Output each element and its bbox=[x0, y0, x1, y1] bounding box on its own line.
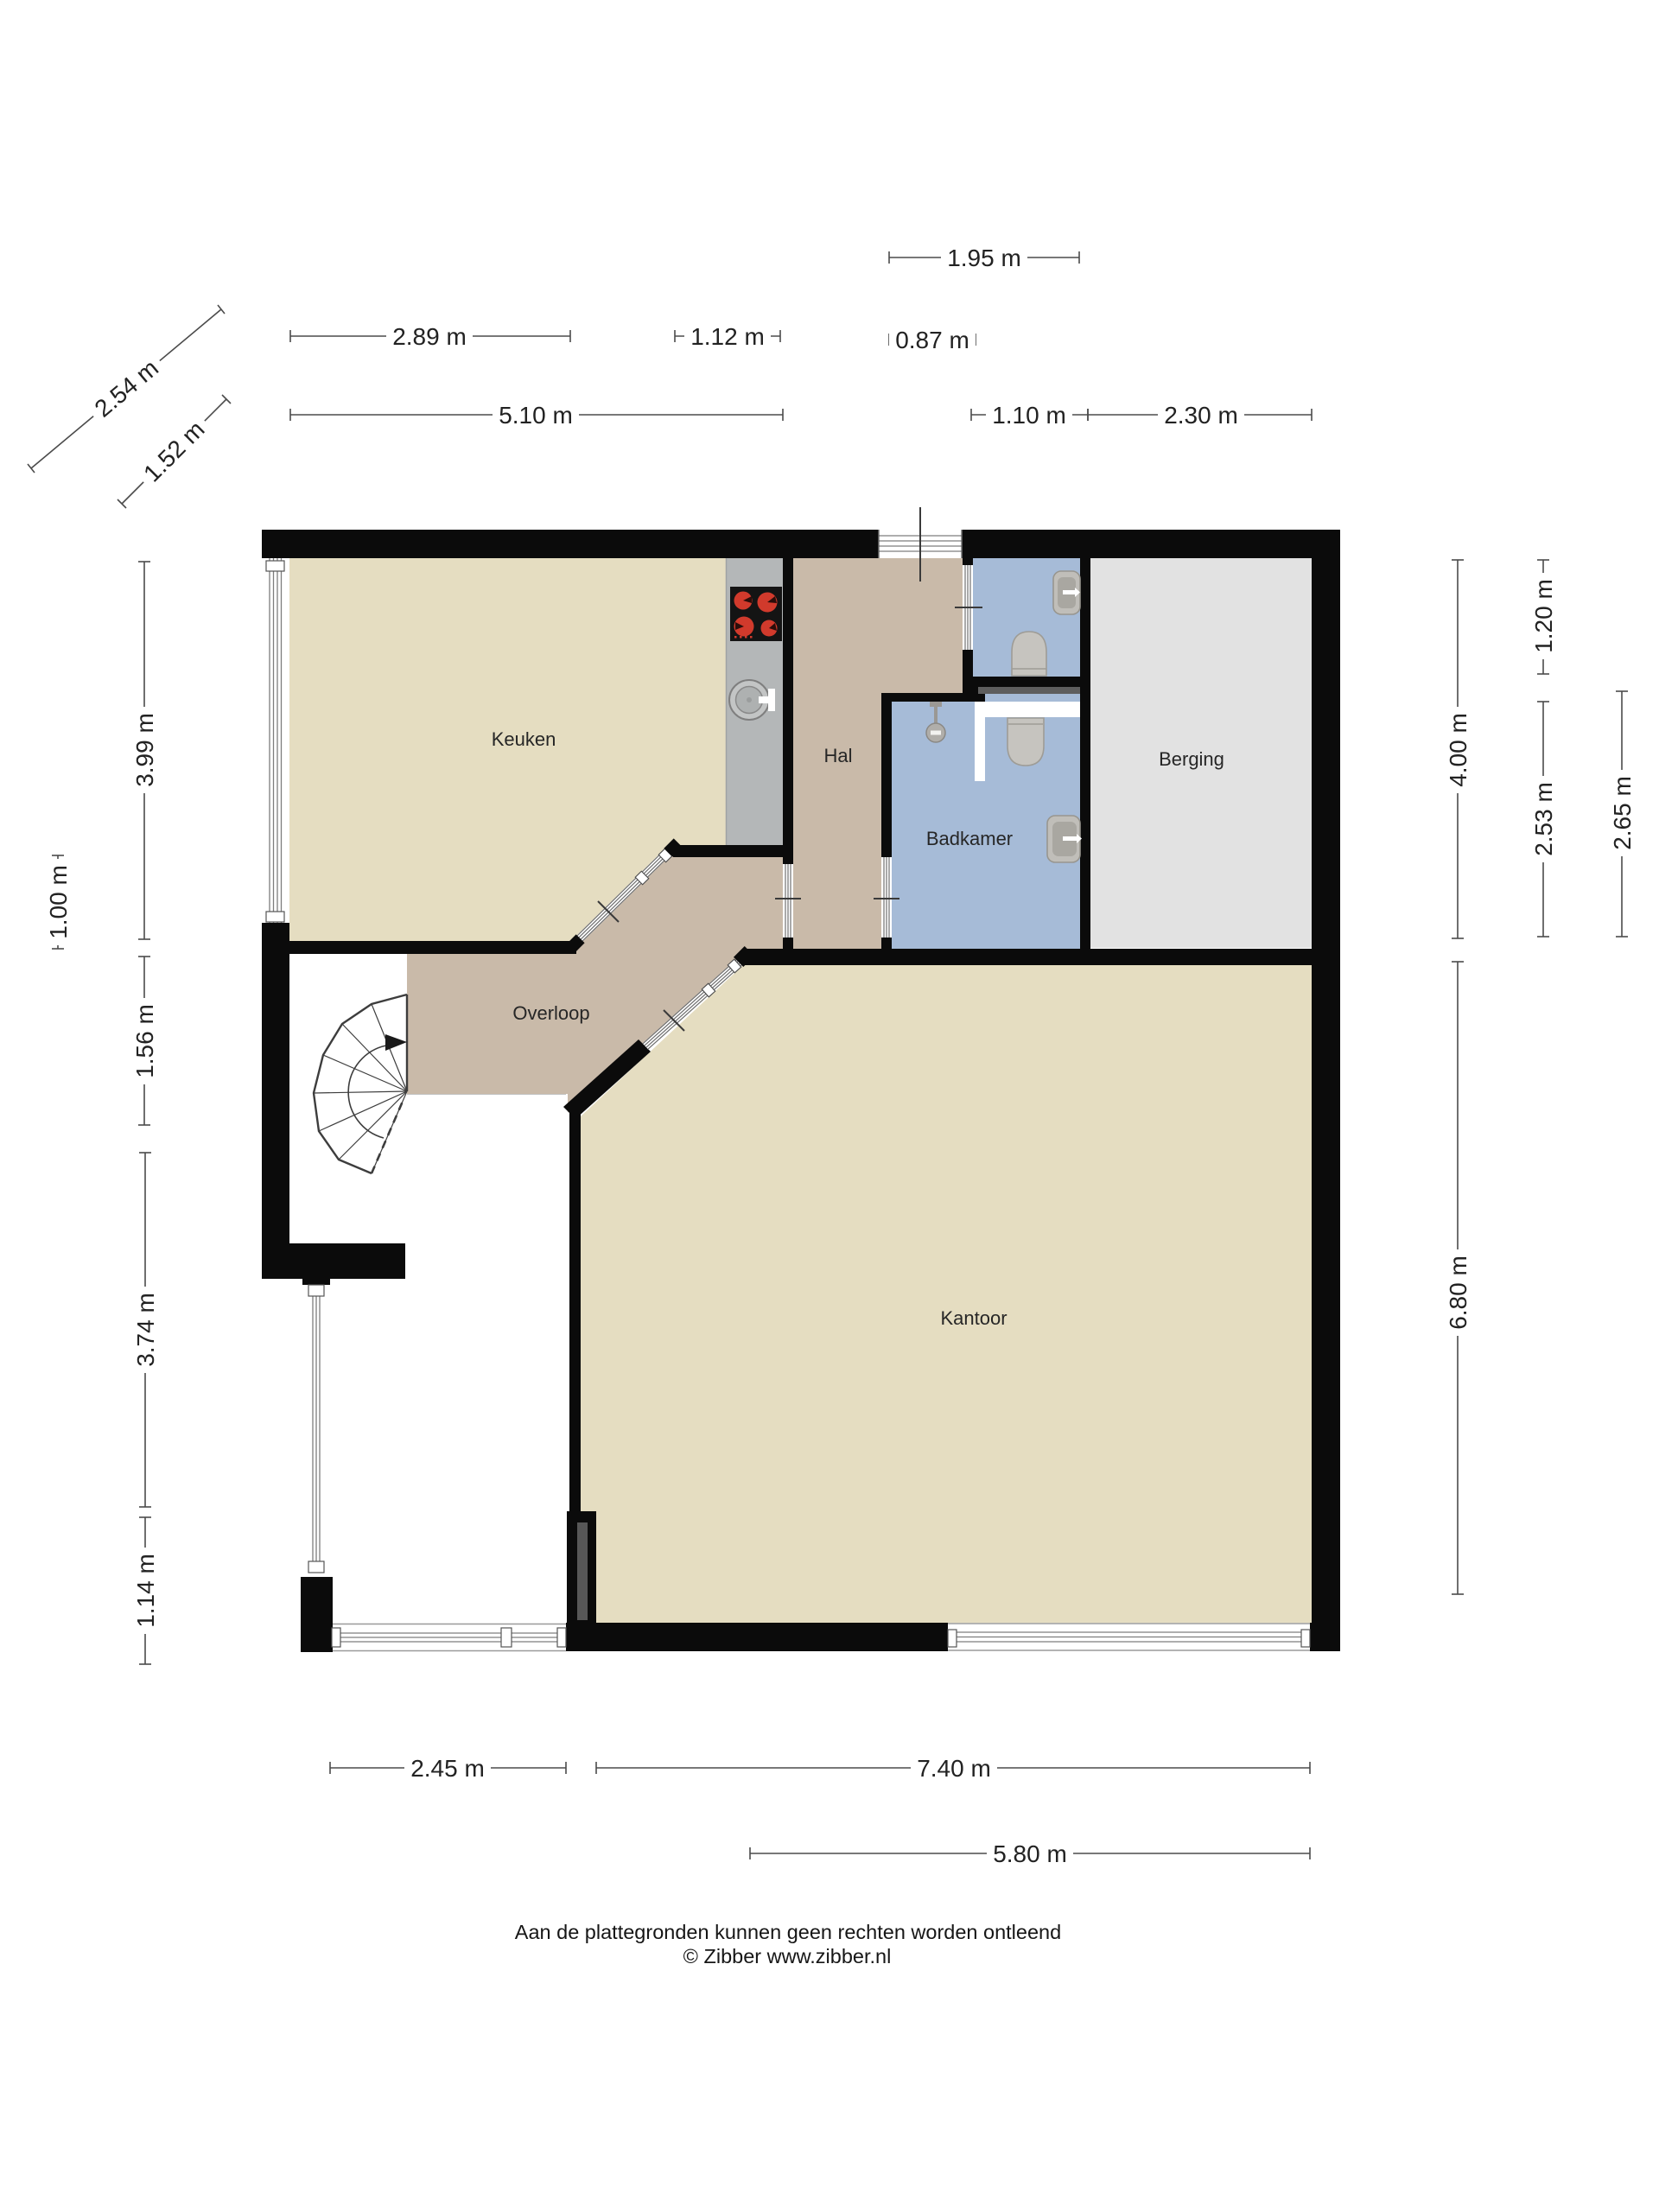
svg-text:1.95 m: 1.95 m bbox=[947, 245, 1021, 271]
svg-text:2.89 m: 2.89 m bbox=[392, 323, 467, 350]
svg-text:3.99 m: 3.99 m bbox=[131, 713, 158, 787]
svg-text:3.74 m: 3.74 m bbox=[132, 1293, 159, 1367]
svg-text:5.10 m: 5.10 m bbox=[499, 402, 573, 429]
svg-text:5.80 m: 5.80 m bbox=[993, 1840, 1067, 1867]
svg-text:Kantoor: Kantoor bbox=[940, 1307, 1007, 1329]
svg-text:1.12 m: 1.12 m bbox=[690, 323, 765, 350]
svg-text:© Zibber www.zibber.nl: © Zibber www.zibber.nl bbox=[683, 1945, 892, 1967]
svg-text:2.30 m: 2.30 m bbox=[1164, 402, 1238, 429]
svg-text:1.00 m: 1.00 m bbox=[45, 865, 72, 939]
svg-text:1.20 m: 1.20 m bbox=[1530, 579, 1557, 653]
svg-text:1.14 m: 1.14 m bbox=[132, 1554, 159, 1628]
svg-text:Badkamer: Badkamer bbox=[926, 828, 1013, 849]
svg-text:Aan de plattegronden kunnen ge: Aan de plattegronden kunnen geen rechten… bbox=[515, 1921, 1061, 1943]
svg-text:4.00 m: 4.00 m bbox=[1445, 713, 1471, 787]
svg-text:2.65 m: 2.65 m bbox=[1609, 776, 1636, 850]
svg-text:0.87 m: 0.87 m bbox=[895, 327, 969, 353]
svg-text:2.45 m: 2.45 m bbox=[410, 1755, 485, 1782]
svg-text:Berging: Berging bbox=[1159, 748, 1224, 770]
svg-text:Overloop: Overloop bbox=[512, 1002, 589, 1024]
svg-text:1.56 m: 1.56 m bbox=[131, 1004, 158, 1078]
svg-text:2.53 m: 2.53 m bbox=[1530, 782, 1557, 856]
svg-text:Hal: Hal bbox=[823, 745, 852, 766]
svg-text:1.10 m: 1.10 m bbox=[992, 402, 1066, 429]
svg-text:Keuken: Keuken bbox=[492, 728, 556, 750]
svg-text:7.40 m: 7.40 m bbox=[917, 1755, 991, 1782]
svg-text:6.80 m: 6.80 m bbox=[1445, 1255, 1471, 1330]
